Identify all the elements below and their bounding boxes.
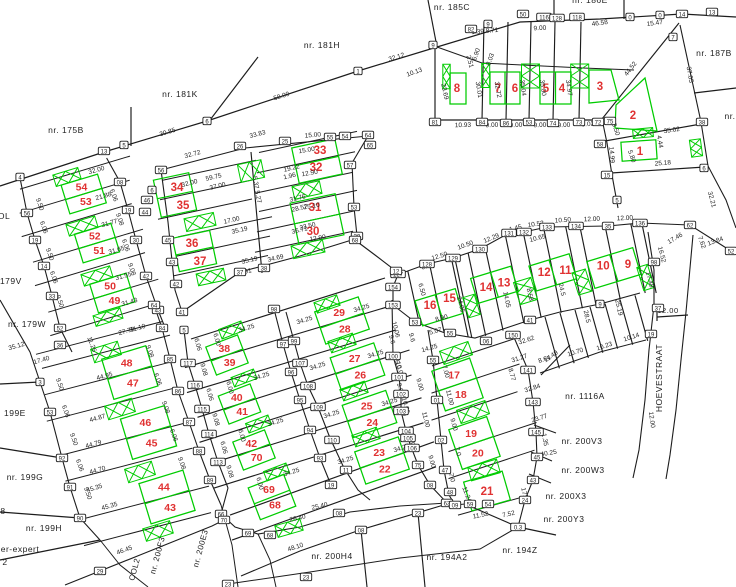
svg-text:96: 96	[288, 370, 295, 376]
svg-text:91: 91	[67, 485, 74, 491]
svg-text:11: 11	[559, 265, 572, 277]
svg-text:06: 06	[483, 339, 490, 345]
svg-text:44: 44	[142, 210, 149, 216]
svg-text:2: 2	[2, 557, 7, 567]
svg-text:nr. 199H: nr. 199H	[26, 523, 62, 533]
svg-text:14: 14	[679, 12, 686, 18]
svg-text:72: 72	[595, 120, 602, 126]
svg-text:nr. 194A2: nr. 194A2	[427, 552, 468, 562]
svg-text:12: 12	[538, 267, 551, 279]
svg-text:0.3: 0.3	[514, 525, 523, 531]
svg-text:19: 19	[648, 332, 655, 338]
svg-text:nr. 179W: nr. 179W	[8, 319, 46, 329]
svg-text:19: 19	[125, 208, 132, 214]
svg-text:19: 19	[32, 238, 39, 244]
svg-text:107: 107	[295, 361, 306, 367]
svg-text:55: 55	[447, 331, 454, 337]
svg-text:nr.: nr.	[725, 111, 736, 121]
svg-text:102: 102	[396, 392, 407, 398]
svg-text:46: 46	[140, 417, 152, 429]
svg-text:29: 29	[97, 569, 104, 575]
svg-text:10: 10	[597, 261, 610, 273]
svg-text:105: 105	[403, 436, 414, 442]
svg-text:101: 101	[394, 375, 405, 381]
svg-text:50: 50	[520, 12, 527, 18]
svg-text:42: 42	[245, 438, 257, 450]
svg-text:12.00: 12.00	[584, 216, 601, 224]
svg-text:nr. 200Y3: nr. 200Y3	[544, 514, 585, 524]
svg-text:86: 86	[175, 389, 182, 395]
svg-text:37: 37	[655, 306, 662, 312]
svg-text:14: 14	[41, 264, 48, 270]
svg-text:23: 23	[373, 447, 385, 459]
svg-text:94: 94	[307, 428, 314, 434]
svg-text:54: 54	[76, 182, 88, 194]
svg-text:37: 37	[237, 270, 244, 276]
svg-text:41: 41	[527, 318, 534, 324]
svg-text:89: 89	[207, 478, 214, 484]
svg-text:13: 13	[709, 10, 716, 16]
svg-text:53: 53	[526, 120, 533, 126]
svg-text:14.99: 14.99	[607, 146, 615, 163]
svg-text:19: 19	[328, 483, 335, 489]
svg-text:117: 117	[183, 361, 193, 367]
svg-text:08: 08	[117, 180, 124, 186]
svg-text:116: 116	[539, 15, 549, 21]
svg-text:14: 14	[480, 282, 493, 294]
svg-text:54: 54	[485, 502, 492, 508]
svg-text:09: 09	[452, 503, 459, 509]
svg-text:nr. 200H4: nr. 200H4	[311, 551, 352, 561]
svg-text:55: 55	[430, 358, 437, 364]
svg-text:41: 41	[179, 310, 186, 316]
svg-text:35: 35	[605, 224, 612, 230]
svg-text:106: 106	[407, 446, 418, 452]
svg-text:29: 29	[333, 307, 345, 319]
svg-text:118: 118	[572, 15, 582, 21]
svg-text:12: 12	[393, 269, 400, 275]
svg-text:70: 70	[251, 452, 263, 464]
svg-text:58: 58	[597, 142, 604, 148]
svg-text:68: 68	[352, 238, 359, 244]
svg-text:25.18: 25.18	[654, 159, 671, 167]
svg-text:55: 55	[327, 135, 334, 141]
svg-text:9: 9	[625, 259, 631, 271]
svg-text:82: 82	[468, 27, 475, 33]
svg-text:116: 116	[190, 383, 200, 389]
svg-text:37: 37	[194, 256, 207, 268]
svg-text:nr. 200V3: nr. 200V3	[562, 436, 603, 446]
svg-text:57: 57	[347, 163, 354, 169]
svg-text:52: 52	[89, 231, 101, 243]
svg-text:15: 15	[604, 173, 611, 179]
svg-text:08: 08	[358, 528, 365, 534]
svg-text:er-expert: er-expert	[1, 544, 40, 554]
svg-text:150: 150	[508, 333, 519, 339]
svg-text:40: 40	[231, 392, 243, 404]
svg-text:64: 64	[151, 303, 158, 309]
svg-text:nr. 1116A: nr. 1116A	[565, 391, 605, 401]
svg-text:115: 115	[197, 407, 207, 413]
svg-text:45: 45	[534, 455, 541, 461]
svg-text:84: 84	[479, 120, 486, 126]
svg-text:70: 70	[221, 518, 228, 524]
svg-text:43: 43	[164, 502, 176, 514]
svg-text:9.00: 9.00	[533, 25, 546, 33]
svg-text:100: 100	[388, 354, 399, 360]
svg-text:nr. 181H: nr. 181H	[304, 40, 340, 50]
svg-text:13: 13	[498, 278, 511, 290]
svg-text:43: 43	[169, 260, 176, 266]
svg-text:42: 42	[173, 282, 180, 288]
svg-text:64: 64	[365, 133, 372, 139]
svg-text:25: 25	[282, 139, 289, 145]
svg-text:99: 99	[291, 339, 298, 345]
svg-text:22: 22	[379, 463, 391, 475]
svg-text:90: 90	[77, 516, 84, 522]
svg-text:23: 23	[225, 582, 232, 587]
svg-text:73: 73	[576, 120, 583, 126]
svg-text:92: 92	[59, 456, 66, 462]
svg-text:08: 08	[427, 483, 434, 489]
svg-text:113: 113	[213, 460, 223, 466]
svg-text:65: 65	[367, 143, 374, 149]
svg-text:25: 25	[361, 401, 373, 413]
svg-text:8: 8	[0, 506, 5, 516]
svg-text:23: 23	[415, 511, 422, 517]
svg-text:18: 18	[455, 389, 467, 401]
svg-text:nr. 175B: nr. 175B	[48, 125, 84, 135]
svg-text:133: 133	[542, 225, 553, 231]
svg-text:145: 145	[531, 430, 542, 436]
svg-text:88: 88	[196, 449, 203, 455]
svg-text:143: 143	[528, 400, 539, 406]
svg-text:62: 62	[687, 223, 694, 229]
svg-text:50: 50	[104, 281, 116, 293]
svg-text:84: 84	[159, 326, 166, 332]
svg-text:33: 33	[314, 145, 327, 157]
svg-text:45: 45	[165, 238, 172, 244]
svg-text:95: 95	[297, 398, 304, 404]
svg-text:26: 26	[237, 144, 244, 150]
svg-text:53: 53	[47, 410, 54, 416]
svg-text:97: 97	[280, 342, 287, 348]
svg-text:52: 52	[728, 249, 735, 255]
svg-text:nr. 199G: nr. 199G	[7, 472, 44, 482]
svg-text:2: 2	[630, 110, 636, 122]
svg-text:9.00: 9.00	[558, 122, 571, 129]
svg-text:6: 6	[512, 83, 518, 95]
svg-text:75: 75	[607, 119, 614, 125]
svg-text:20: 20	[472, 448, 484, 460]
svg-text:130: 130	[475, 247, 486, 253]
svg-text:53: 53	[351, 205, 358, 211]
svg-text:53: 53	[412, 320, 419, 326]
svg-text:nr. 181K: nr. 181K	[162, 89, 198, 99]
svg-text:43: 43	[530, 478, 537, 484]
svg-text:33: 33	[49, 294, 56, 300]
svg-text:11: 11	[343, 468, 350, 474]
svg-text:46: 46	[144, 198, 151, 204]
svg-text:93: 93	[317, 456, 324, 462]
svg-text:3: 3	[597, 81, 603, 93]
svg-text:132: 132	[519, 230, 530, 236]
svg-text:21: 21	[481, 486, 494, 498]
svg-text:134: 134	[571, 224, 582, 230]
svg-text:103: 103	[396, 409, 407, 415]
svg-text:98: 98	[651, 260, 658, 266]
svg-text:56: 56	[24, 211, 31, 217]
svg-text:98: 98	[271, 307, 278, 313]
svg-text:nr. 200W3: nr. 200W3	[561, 465, 604, 475]
svg-text:136: 136	[635, 221, 646, 227]
svg-text:15: 15	[443, 293, 456, 305]
svg-text:nr. 200X3: nr. 200X3	[546, 491, 587, 501]
svg-text:85: 85	[167, 357, 174, 363]
svg-text:108: 108	[303, 384, 314, 390]
svg-text:47: 47	[442, 468, 449, 474]
svg-text:1: 1	[637, 146, 644, 158]
svg-text:39: 39	[224, 357, 236, 369]
svg-text:19: 19	[465, 428, 477, 440]
svg-text:141: 141	[523, 368, 534, 374]
svg-text:23: 23	[303, 575, 310, 581]
svg-text:38: 38	[261, 266, 268, 272]
svg-text:81: 81	[432, 120, 439, 126]
svg-text:44: 44	[158, 482, 170, 494]
svg-text:36: 36	[57, 343, 64, 349]
svg-text:59: 59	[467, 502, 474, 508]
svg-text:35: 35	[177, 200, 190, 212]
svg-text:109: 109	[313, 405, 324, 411]
svg-text:30: 30	[133, 238, 140, 244]
svg-text:110: 110	[327, 438, 337, 444]
svg-text:nr. 187B: nr. 187B	[696, 48, 732, 58]
svg-text:74: 74	[550, 121, 557, 127]
svg-text:128: 128	[422, 262, 433, 268]
svg-text:38: 38	[699, 120, 706, 126]
svg-text:131: 131	[504, 231, 515, 237]
svg-text:87: 87	[186, 420, 193, 426]
svg-text:53: 53	[80, 196, 92, 208]
svg-text:69: 69	[263, 484, 275, 496]
svg-text:08: 08	[336, 511, 343, 517]
svg-text:49: 49	[109, 295, 121, 307]
svg-text:9.00: 9.00	[534, 122, 547, 129]
svg-text:69: 69	[245, 531, 252, 537]
svg-text:nr. 199E: nr. 199E	[0, 408, 26, 418]
svg-text:51: 51	[93, 245, 105, 257]
svg-text:68: 68	[267, 533, 274, 539]
svg-text:48: 48	[121, 357, 133, 369]
svg-text:HOEVESTRAAT: HOEVESTRAAT	[654, 344, 664, 412]
svg-text:47: 47	[127, 377, 139, 389]
svg-text:16: 16	[424, 300, 437, 312]
svg-text:26: 26	[354, 369, 366, 381]
svg-text:36: 36	[186, 238, 199, 250]
svg-text:nr. 185C: nr. 185C	[434, 2, 470, 12]
svg-text:42: 42	[143, 274, 150, 280]
svg-text:48: 48	[447, 490, 454, 496]
svg-text:68: 68	[269, 500, 281, 512]
svg-text:45: 45	[146, 437, 158, 449]
svg-text:OL: OL	[0, 211, 10, 221]
svg-text:8: 8	[454, 83, 461, 95]
svg-text:128: 128	[552, 16, 563, 22]
svg-text:54: 54	[342, 134, 349, 140]
svg-text:75: 75	[415, 463, 422, 469]
svg-text:nr. 186E: nr. 186E	[572, 0, 608, 5]
svg-text:114: 114	[204, 432, 214, 438]
svg-text:13: 13	[101, 149, 108, 155]
svg-text:24: 24	[522, 498, 529, 504]
svg-text:10.93: 10.93	[455, 122, 472, 130]
svg-text:27: 27	[349, 353, 361, 365]
svg-text:154: 154	[388, 285, 399, 291]
svg-text:02: 02	[438, 438, 445, 444]
svg-text:28: 28	[339, 323, 351, 335]
svg-text:. 179V: . 179V	[0, 276, 22, 286]
svg-text:56: 56	[158, 168, 165, 174]
svg-text:01: 01	[434, 398, 441, 404]
svg-text:153: 153	[388, 303, 399, 309]
svg-text:52: 52	[57, 326, 64, 332]
svg-text:nr. 194Z: nr. 194Z	[502, 545, 537, 555]
svg-text:129: 129	[448, 256, 459, 262]
svg-text:15.00: 15.00	[304, 131, 321, 139]
svg-text:12.00: 12.00	[617, 215, 634, 223]
svg-text:86: 86	[503, 121, 510, 127]
svg-text:41: 41	[236, 406, 248, 418]
